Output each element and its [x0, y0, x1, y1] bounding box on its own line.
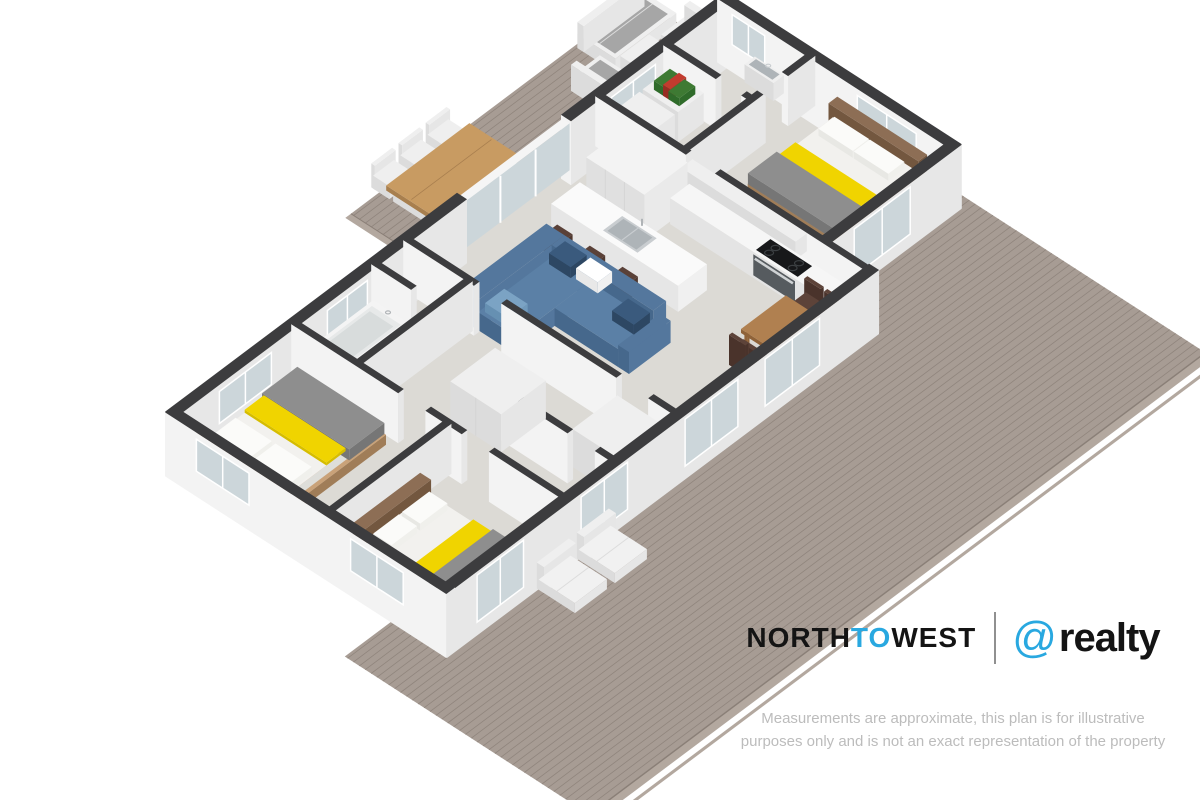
logo-west: WEST	[891, 622, 976, 654]
disclaimer-line2: purposes only and is not an exact repres…	[741, 733, 1165, 750]
logo-north: NORTH	[746, 622, 851, 654]
disclaimer-text: Measurements are approximate, this plan …	[718, 708, 1188, 753]
logo-at-icon: @	[1012, 616, 1057, 660]
floorplan-page: NORTHTOWEST @realty Measurements are app…	[0, 0, 1200, 800]
brand-block: NORTHTOWEST @realty Measurements are app…	[718, 608, 1188, 768]
disclaimer-line1: Measurements are approximate, this plan …	[761, 710, 1145, 727]
agency-logo: NORTHTOWEST @realty	[718, 608, 1188, 668]
logo-to: TO	[851, 622, 891, 654]
logo-divider	[994, 612, 996, 664]
logo-realty: realty	[1059, 618, 1160, 658]
